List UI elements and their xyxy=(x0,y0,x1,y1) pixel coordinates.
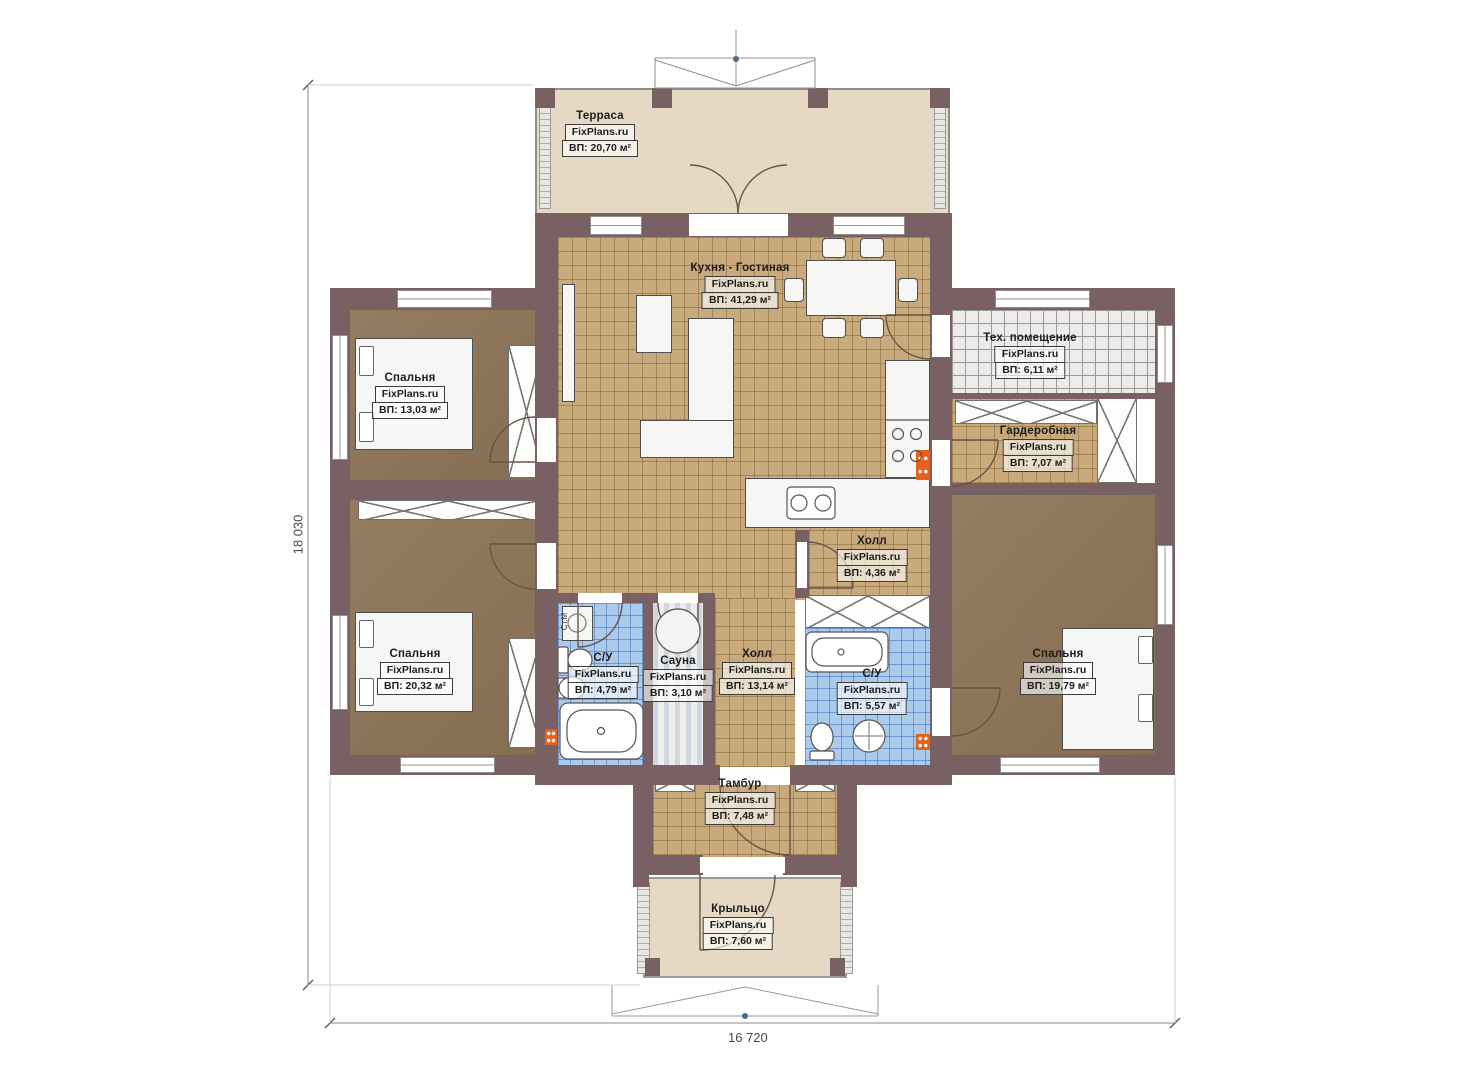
room-brand: FixPlans.ru xyxy=(705,276,776,293)
room-brand: FixPlans.ru xyxy=(375,386,446,403)
room-name: Тех. помещение xyxy=(983,332,1077,344)
terrace-rail-right xyxy=(934,94,946,209)
room-label-bedroom-right: Спальня FixPlans.ru ВП: 19,79 м² xyxy=(1020,648,1096,695)
wall xyxy=(952,483,1155,495)
window xyxy=(397,290,492,308)
room-label-tambur: Тамбур FixPlans.ru ВП: 7,48 м² xyxy=(705,778,776,825)
room-brand: FixPlans.ru xyxy=(1023,662,1094,679)
kitchen-counter xyxy=(745,478,930,528)
washing-machine-label: Ст.М xyxy=(560,613,569,630)
room-brand: FixPlans.ru xyxy=(837,549,908,566)
room-name: Холл xyxy=(742,648,772,660)
room-name: С/У xyxy=(593,652,612,664)
room-label-wardrobe: Гардеробная FixPlans.ru ВП: 7,07 м² xyxy=(1000,425,1077,472)
terrace-pillar xyxy=(535,88,555,108)
tv-cabinet xyxy=(562,284,575,402)
window xyxy=(1157,545,1173,625)
door-opening xyxy=(658,593,698,603)
room-name: С/У xyxy=(862,668,881,680)
window xyxy=(833,216,905,235)
wall xyxy=(790,765,837,785)
room-brand: FixPlans.ru xyxy=(380,662,451,679)
sofa xyxy=(688,318,734,426)
room-name: Тамбур xyxy=(719,778,762,790)
room-area: ВП: 19,79 м² xyxy=(1020,678,1096,695)
porch-post xyxy=(645,958,660,976)
room-name: Спальня xyxy=(1032,648,1083,660)
room-label-bathroom-right: С/У FixPlans.ru ВП: 5,57 м² xyxy=(837,668,908,715)
terrace-door-opening xyxy=(689,214,788,236)
porch-post xyxy=(633,873,649,887)
dimension-width: 16 720 xyxy=(728,1030,768,1045)
pillow xyxy=(1138,694,1153,722)
porch-post xyxy=(841,873,857,887)
door-opening xyxy=(932,440,950,486)
dining-chair xyxy=(860,318,884,338)
door-opening xyxy=(932,315,950,357)
floor-plan-canvas: Ст.М xyxy=(0,0,1474,1080)
wall xyxy=(783,855,857,875)
porch-steps xyxy=(612,985,878,1019)
room-area: ВП: 4,79 м² xyxy=(568,682,638,699)
room-brand: FixPlans.ru xyxy=(565,124,636,141)
room-area: ВП: 20,70 м² xyxy=(562,140,638,157)
room-label-sauna: Сауна FixPlans.ru ВП: 3,10 м² xyxy=(643,655,714,702)
coffee-table xyxy=(636,295,672,353)
door-opening xyxy=(797,542,807,588)
room-brand: FixPlans.ru xyxy=(995,346,1066,363)
window xyxy=(400,757,495,773)
radiator xyxy=(916,734,930,750)
window xyxy=(1000,757,1100,773)
door-opening xyxy=(932,688,950,736)
dining-chair xyxy=(898,278,918,302)
pillow xyxy=(359,620,374,648)
radiator xyxy=(545,729,557,745)
window xyxy=(1157,325,1173,383)
room-brand: FixPlans.ru xyxy=(837,682,908,699)
room-name: Терраса xyxy=(576,110,624,122)
terrace-steps-canopy xyxy=(655,30,815,88)
room-label-tech: Тех. помещение FixPlans.ru ВП: 6,11 м² xyxy=(983,332,1077,379)
hall-strip-floor xyxy=(558,530,809,600)
door-opening xyxy=(537,543,556,589)
wardrobe-cabinet xyxy=(1097,398,1137,483)
window xyxy=(332,335,348,460)
room-brand: FixPlans.ru xyxy=(643,669,714,686)
room-area: ВП: 13,14 м² xyxy=(719,678,795,695)
room-label-bedroom-top-left: Спальня FixPlans.ru ВП: 13,03 м² xyxy=(372,372,448,419)
pillow xyxy=(359,678,374,706)
room-brand: FixPlans.ru xyxy=(703,917,774,934)
room-name: Спальня xyxy=(384,372,435,384)
room-name: Сауна xyxy=(660,655,696,667)
room-name: Крыльцо xyxy=(711,903,765,915)
wall xyxy=(633,855,703,875)
room-name: Гардеробная xyxy=(1000,425,1077,437)
room-name: Холл xyxy=(857,535,887,547)
room-area: ВП: 4,36 м² xyxy=(837,565,907,582)
room-brand: FixPlans.ru xyxy=(568,666,639,683)
terrace-pillar xyxy=(808,88,828,108)
room-area: ВП: 7,60 м² xyxy=(703,933,773,950)
wall xyxy=(350,480,535,500)
terrace-pillar xyxy=(652,88,672,108)
dimension-height: 18 030 xyxy=(290,515,305,555)
terrace-pillar xyxy=(930,88,950,108)
room-name: Спальня xyxy=(389,648,440,660)
window xyxy=(590,216,642,235)
dining-chair xyxy=(860,238,884,258)
room-label-kitchen-living: Кухня - Гостиная FixPlans.ru ВП: 41,29 м… xyxy=(691,262,790,309)
dining-chair xyxy=(822,318,846,338)
wardrobe-cabinet xyxy=(358,500,536,520)
room-label-hall-main: Холл FixPlans.ru ВП: 13,14 м² xyxy=(719,648,795,695)
room-brand: FixPlans.ru xyxy=(722,662,793,679)
room-area: ВП: 3,10 м² xyxy=(643,685,713,702)
room-label-bathroom-left: С/У FixPlans.ru ВП: 4,79 м² xyxy=(568,652,639,699)
closet xyxy=(805,595,930,628)
room-brand: FixPlans.ru xyxy=(705,792,776,809)
radiator xyxy=(916,450,930,480)
door-opening xyxy=(700,857,785,873)
room-area: ВП: 6,11 м² xyxy=(995,362,1065,379)
dining-chair xyxy=(822,238,846,258)
room-label-bedroom-bottom-left: Спальня FixPlans.ru ВП: 20,32 м² xyxy=(377,648,453,695)
dining-table xyxy=(806,260,896,316)
window xyxy=(332,615,348,710)
room-label-terrace: Терраса FixPlans.ru ВП: 20,70 м² xyxy=(562,110,638,157)
door-opening xyxy=(578,593,622,603)
room-area: ВП: 7,48 м² xyxy=(705,808,775,825)
room-label-porch: Крыльцо FixPlans.ru ВП: 7,60 м² xyxy=(703,903,774,950)
terrace-rail-left xyxy=(539,94,551,209)
room-area: ВП: 20,32 м² xyxy=(377,678,453,695)
room-area: ВП: 13,03 м² xyxy=(372,402,448,419)
wardrobe-cabinet xyxy=(955,400,1097,424)
window xyxy=(995,290,1090,308)
room-label-hall-small: Холл FixPlans.ru ВП: 4,36 м² xyxy=(837,535,908,582)
room-name: Кухня - Гостиная xyxy=(691,262,790,274)
wall xyxy=(952,393,1155,399)
room-area: ВП: 5,57 м² xyxy=(837,698,907,715)
sofa xyxy=(640,420,734,458)
room-area: ВП: 41,29 м² xyxy=(702,292,778,309)
porch-post xyxy=(830,958,845,976)
pillow xyxy=(1138,636,1153,664)
door-opening xyxy=(537,418,556,462)
room-area: ВП: 7,07 м² xyxy=(1003,455,1073,472)
room-brand: FixPlans.ru xyxy=(1003,439,1074,456)
